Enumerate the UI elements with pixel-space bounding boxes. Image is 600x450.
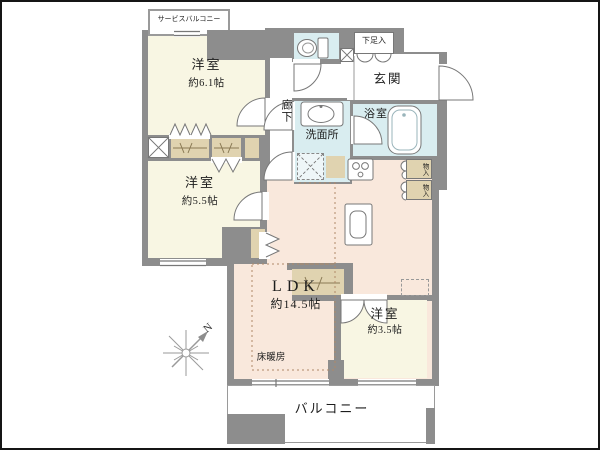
- closet-bedroom2: [212, 138, 241, 158]
- compass-icon: N: [163, 321, 215, 376]
- wall-notch-bedroom1: [207, 30, 265, 60]
- bedroom2-size: 約5.5帖: [148, 196, 252, 208]
- pipe-shaft-box: [148, 137, 169, 158]
- storage-lower-label: 物入: [411, 182, 427, 199]
- bedroom2-label: 洋室: [148, 176, 252, 191]
- bathroom-label: 浴室: [354, 108, 398, 121]
- ldk-floor-kitchen-left: [294, 184, 352, 264]
- closet-bedroom1: [171, 138, 209, 158]
- ldk-floor-corridor-side: [267, 180, 294, 264]
- washroom-label: 洗面所: [296, 129, 348, 142]
- entrance-label: 玄関: [360, 72, 416, 86]
- hall-floor: [292, 62, 347, 98]
- toilet-floor: [294, 33, 339, 62]
- dashed-equipment-box: [401, 279, 429, 296]
- ldk-label: LDK: [240, 278, 352, 296]
- pipe-shaft-box-2: [340, 48, 354, 62]
- balcony-label: バルコニー: [277, 402, 387, 417]
- corridor-label: 廊下: [270, 86, 292, 136]
- bedroom3-label: 洋室: [347, 307, 423, 321]
- wall-bedroom3-step: [328, 360, 344, 380]
- washroom-counter: [326, 156, 345, 178]
- floor-plan: サービスバルコニー: [0, 0, 600, 450]
- closet-ldk-side: [251, 229, 265, 258]
- wall-toilet-bottom: [319, 59, 341, 64]
- bedroom1-size: 約6.1帖: [148, 78, 265, 90]
- bedroom1-label: 洋室: [148, 58, 265, 73]
- balcony-wall-right: [426, 408, 435, 444]
- ldk-size: 約14.5帖: [240, 298, 352, 312]
- balcony-wall-left: [227, 414, 285, 444]
- storage-upper-label: 物入: [411, 161, 427, 178]
- shoe-cabinet-label: 下足入: [354, 36, 394, 45]
- washing-machine-pan: [297, 153, 324, 180]
- floor-heating-label: 床暖房: [250, 353, 292, 364]
- closet-small: [245, 138, 259, 158]
- compass-north-label: N: [201, 321, 215, 335]
- service-balcony-label: サービスバルコニー: [148, 15, 230, 23]
- bedroom3-size: 約3.5帖: [347, 325, 423, 337]
